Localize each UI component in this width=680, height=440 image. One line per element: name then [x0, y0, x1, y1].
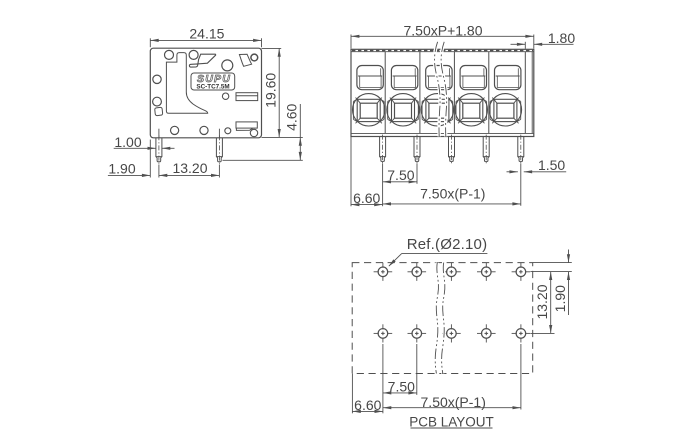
svg-text:19.60: 19.60 [262, 73, 278, 108]
svg-text:7.50: 7.50 [388, 378, 415, 394]
svg-text:1.00: 1.00 [114, 134, 141, 150]
svg-text:1.90: 1.90 [108, 160, 135, 176]
svg-text:6.60: 6.60 [353, 190, 380, 206]
svg-text:7.50: 7.50 [387, 167, 414, 183]
svg-text:7.50x(P-1): 7.50x(P-1) [420, 186, 485, 202]
svg-text:1.90: 1.90 [552, 285, 568, 312]
svg-text:13.20: 13.20 [172, 160, 207, 176]
svg-text:PCB LAYOUT: PCB LAYOUT [409, 414, 494, 429]
svg-text:7.50x(P-1): 7.50x(P-1) [421, 394, 486, 410]
svg-text:7.50xP+1.80: 7.50xP+1.80 [403, 23, 482, 39]
svg-text:SC-TC7.5M: SC-TC7.5M [196, 84, 229, 91]
svg-text:Ref.(Ø2.10): Ref.(Ø2.10) [407, 236, 488, 253]
svg-text:1.80: 1.80 [548, 30, 575, 46]
svg-text:6.60: 6.60 [354, 397, 381, 413]
svg-text:1.50: 1.50 [538, 157, 565, 173]
svg-text:13.20: 13.20 [534, 284, 550, 319]
svg-text:4.60: 4.60 [284, 103, 300, 130]
svg-text:24.15: 24.15 [189, 26, 224, 42]
